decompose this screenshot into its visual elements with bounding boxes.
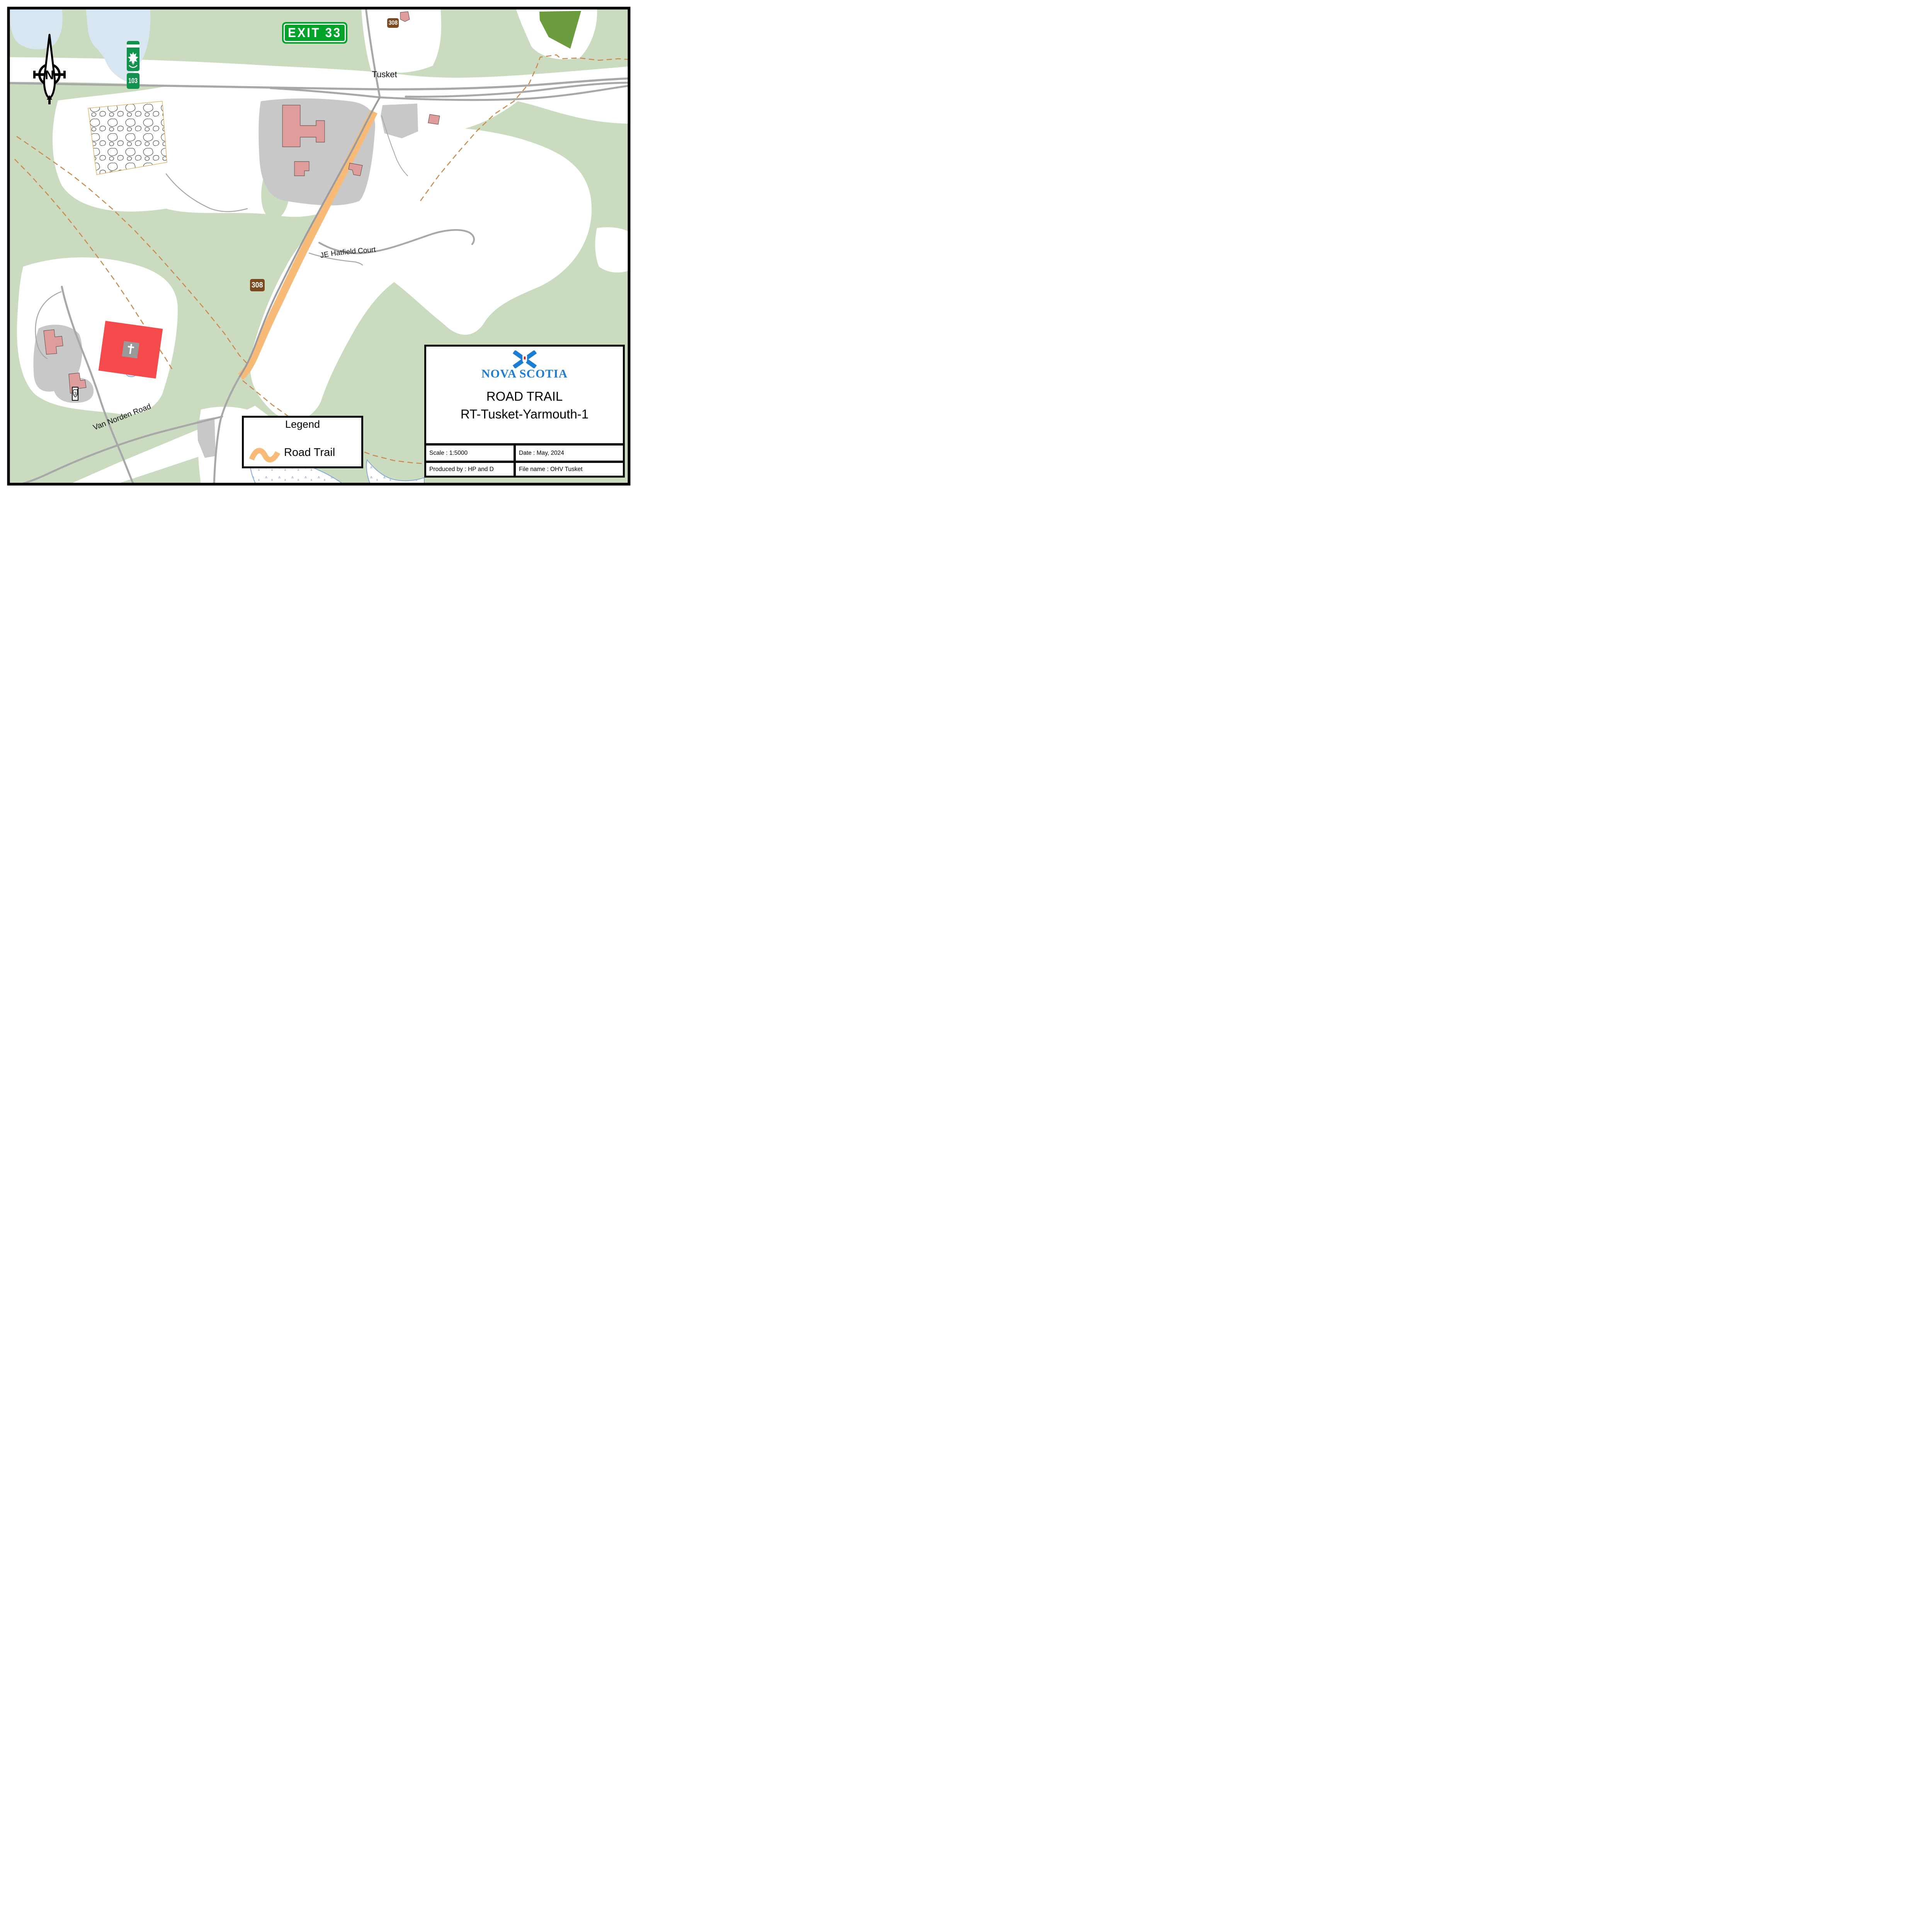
- north-label: N: [45, 68, 54, 82]
- us-shield-icon: 3: [73, 389, 78, 399]
- route-3-number: 3: [74, 391, 77, 396]
- title-block-header: NOVA SCOTIA ROAD TRAIL RT-Tusket-Yarmout…: [426, 347, 623, 443]
- file-name-cell: File name : OHV Tusket: [516, 463, 623, 476]
- route-3-shield: 3: [72, 387, 78, 401]
- map-title-line2: RT-Tusket-Yarmouth-1: [426, 407, 623, 422]
- scale-text: Scale : 1:5000: [429, 446, 468, 461]
- scale-cell: Scale : 1:5000: [426, 446, 514, 461]
- highway-103-shield: 103: [127, 41, 139, 89]
- route-308-number: 308: [252, 281, 263, 290]
- shield-stripe: [127, 44, 139, 48]
- produced-by-text: Produced by : HP and D: [429, 463, 494, 476]
- route-308-number: 308: [388, 20, 397, 27]
- produced-by-cell: Produced by : HP and D: [426, 463, 514, 476]
- building: [400, 12, 410, 22]
- legend-box: Legend Road Trail: [242, 416, 363, 468]
- church: [99, 321, 163, 379]
- map-page: Tusket JE Hatfield Court Van Norden Road…: [0, 0, 638, 493]
- nova-scotia-flag-icon: [512, 350, 537, 368]
- route-308-marker-mid: 308: [250, 279, 265, 291]
- exit-33-sign: EXIT 33: [282, 22, 347, 44]
- highway-shield-emblem: [127, 41, 139, 71]
- date-text: Date : May, 2024: [519, 446, 564, 461]
- file-name-text: File name : OHV Tusket: [519, 463, 583, 476]
- date-cell: Date : May, 2024: [516, 446, 623, 461]
- highway-number-tab: 103: [127, 73, 139, 89]
- legend-title: Legend: [244, 418, 361, 430]
- highway-number: 103: [128, 77, 138, 85]
- legend-item-label: Road Trail: [284, 446, 335, 459]
- town-label: Tusket: [372, 70, 397, 79]
- building: [428, 114, 440, 124]
- map-title-line1: ROAD TRAIL: [426, 389, 623, 404]
- trail-swatch-icon: [248, 445, 281, 465]
- rocky-area: [88, 101, 167, 175]
- title-block: NOVA SCOTIA ROAD TRAIL RT-Tusket-Yarmout…: [424, 345, 625, 478]
- exit-sign-label: EXIT 33: [288, 26, 342, 41]
- exit-sign-border: EXIT 33: [284, 24, 346, 42]
- route-308-marker-top: 308: [387, 18, 399, 28]
- brand-wordmark: NOVA SCOTIA: [426, 367, 623, 381]
